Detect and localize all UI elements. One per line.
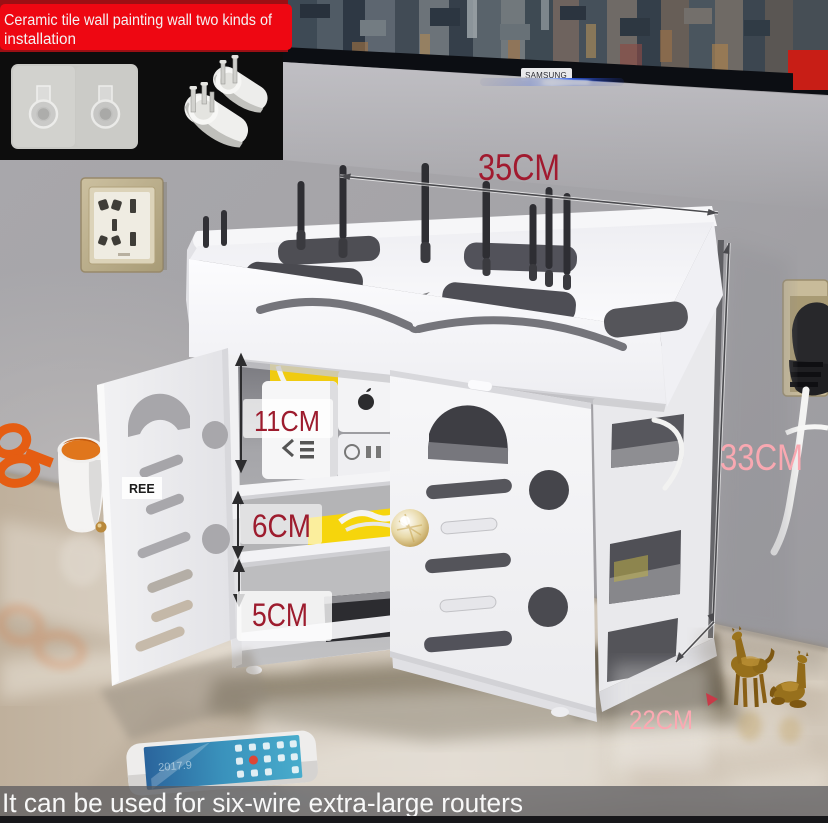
svg-text:11CM: 11CM [254,406,320,438]
svg-text:REE: REE [129,482,155,496]
svg-text:33CM: 33CM [720,437,803,478]
svg-text:6CM: 6CM [252,508,311,544]
svg-text:It can be used for six-wire ex: It can be used for six-wire extra-large … [2,788,523,818]
svg-text:22CM: 22CM [629,705,693,735]
svg-text:installation: installation [4,31,76,48]
svg-text:35CM: 35CM [478,147,560,188]
svg-text:5CM: 5CM [252,597,308,633]
svg-text:Ceramic tile wall painting wal: Ceramic tile wall painting wall two kind… [4,12,273,29]
